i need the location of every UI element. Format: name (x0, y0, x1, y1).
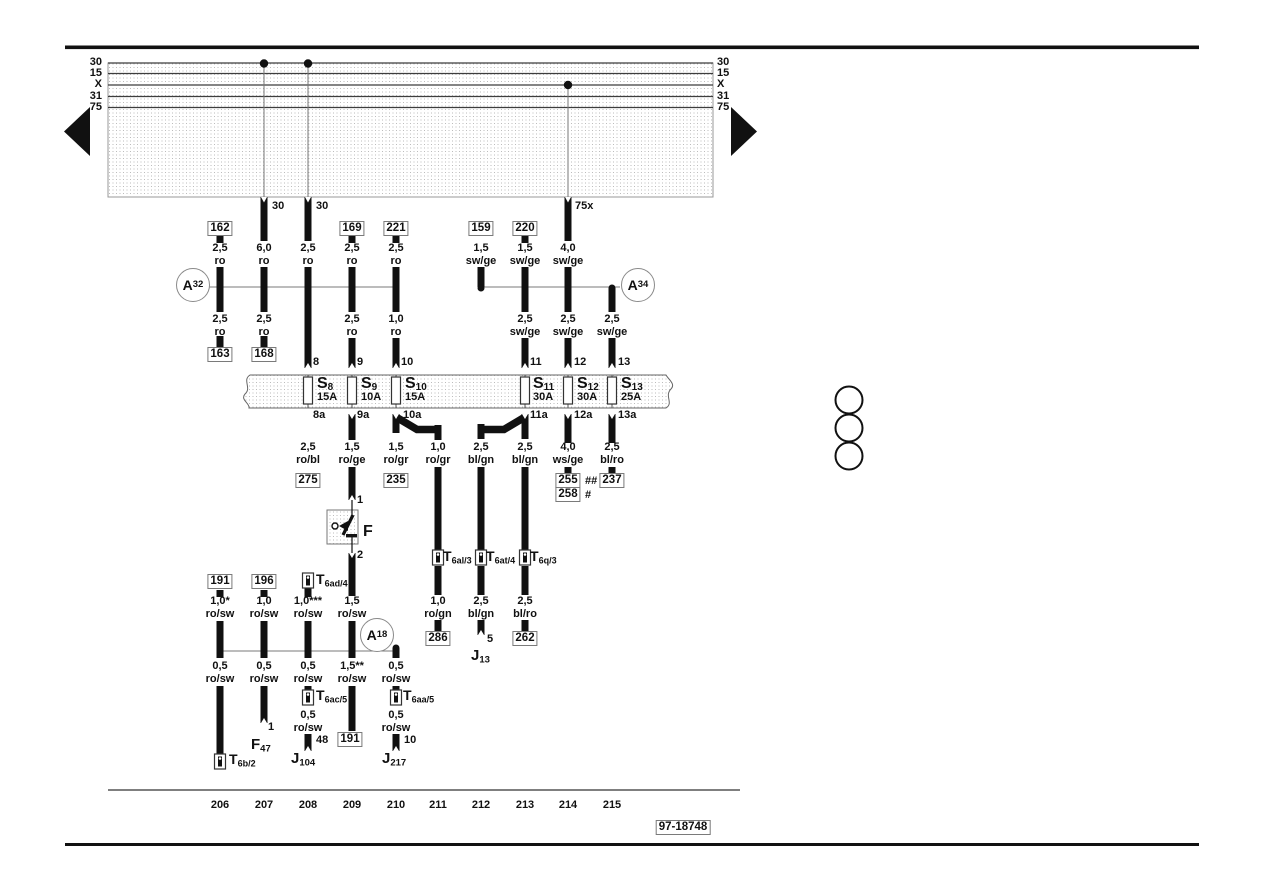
component-f-label: F (363, 524, 373, 539)
ref-box-275: 275 (295, 473, 320, 488)
wire-label: 2,5bl/ro (513, 595, 537, 621)
fuse-s13-label: S1325A (621, 376, 643, 403)
track-number: 212 (472, 799, 490, 811)
wire-label: 1,5sw/ge (510, 242, 541, 268)
rail-label: 75 (717, 102, 747, 113)
terminal-10: 10 (401, 356, 413, 368)
connector-t6ad4-label: T6ad/4 (316, 572, 348, 586)
wire-label: 2,5ro (388, 242, 403, 268)
node-a32: A32 (176, 268, 210, 302)
terminal-9a: 9a (357, 409, 369, 421)
bus-exit-label: 30 (316, 200, 328, 212)
terminal-9: 9 (357, 356, 363, 368)
terminal-j104-48: 48 (316, 734, 328, 746)
wire-label: 0,5ro/sw (250, 660, 279, 686)
rail-label: X (717, 79, 747, 90)
ref-box-235: 235 (383, 473, 408, 488)
rail-label: X (72, 79, 102, 90)
track-number: 207 (255, 799, 273, 811)
bus-rail-labels-left: 30 15 X 31 75 (72, 57, 102, 113)
node-a18: A18 (360, 618, 394, 652)
ref-box-221: 221 (383, 221, 408, 236)
wire-label: 1,0***ro/sw (294, 595, 323, 621)
wire-label: 0,5ro/sw (294, 660, 323, 686)
diagram-number: 97-18748 (656, 820, 711, 835)
wire-label: 0,5ro/sw (294, 709, 323, 735)
ref-box-163: 163 (207, 347, 232, 362)
component-f47-label: F47 (251, 737, 271, 752)
wire-label: 2,5ro (212, 242, 227, 268)
wire-label: 6,0ro (256, 242, 271, 268)
connector-t6at4-label: T6at/4 (486, 549, 515, 563)
ref-box-258: 258 (555, 487, 580, 502)
wire-label: 1,5ro/gr (383, 441, 408, 467)
connector-t6al3-label: T6al/3 (443, 549, 472, 563)
fuse-s8-label: S815A (317, 376, 337, 403)
connector-t6aa5-label: T6aa/5 (403, 688, 434, 702)
fuse-strip (244, 375, 673, 408)
ref-box-191: 191 (207, 574, 232, 589)
fuse-s9-label: S910A (361, 376, 381, 403)
wire-label: 2,5ro/bl (296, 441, 320, 467)
fuse-s12-label: S1230A (577, 376, 599, 403)
connector-t6ad4-icon (303, 573, 314, 588)
wire-label: 2,5ro (344, 242, 359, 268)
terminal-8: 8 (313, 356, 319, 368)
ref-mark-255: ## (585, 475, 597, 487)
terminal-f47-1: 1 (268, 721, 274, 733)
terminal-10a: 10a (403, 409, 421, 421)
wire-label: 2,5sw/ge (597, 313, 628, 339)
ref-box-191-bottom: 191 (337, 732, 362, 747)
wire-label: 2,5sw/ge (553, 313, 584, 339)
binder-holes (836, 387, 863, 470)
wire-label: 4,0sw/ge (553, 242, 584, 268)
rail-label: 75 (72, 102, 102, 113)
wiring-diagram-graphics (0, 0, 1263, 893)
terminal-12a: 12a (574, 409, 592, 421)
connector-t6b2-label: T6b/2 (229, 752, 256, 766)
wire-label: 2,5sw/ge (510, 313, 541, 339)
bus-exit-label: 30 (272, 200, 284, 212)
wire-label: 1,5ro/sw (338, 595, 367, 621)
wire-label: 1,5ro/ge (339, 441, 366, 467)
wire-label: 1,0ro/gn (424, 595, 452, 621)
ref-mark-258: # (585, 489, 591, 501)
wire-label: 2,5bl/gn (468, 441, 494, 467)
wire-label: 1,0ro/sw (250, 595, 279, 621)
terminal-11: 11 (530, 356, 542, 368)
wire-label: 1,0ro (388, 313, 403, 339)
track-number: 210 (387, 799, 405, 811)
connector-t6q3-label: T6q/3 (530, 549, 557, 563)
wire-label: 0,5ro/sw (206, 660, 235, 686)
wire-label: 0,5ro/sw (382, 660, 411, 686)
connector-t6q3-icon (520, 550, 531, 565)
brake-switch-symbol (327, 500, 358, 553)
arrow-right-icon (731, 107, 757, 156)
bus-bar (108, 59, 713, 197)
wire-label: 2,5ro (300, 242, 315, 268)
wire-label: 2,5ro (344, 313, 359, 339)
track-number: 215 (603, 799, 621, 811)
ref-box-286: 286 (425, 631, 450, 646)
wire-label: 0,5ro/sw (382, 709, 411, 735)
terminal-13a: 13a (618, 409, 636, 421)
wire-label: 2,5ro (212, 313, 227, 339)
ref-box-262: 262 (512, 631, 537, 646)
terminal-j13-5: 5 (487, 633, 493, 645)
bus-rail-labels-right: 30 15 X 31 75 (717, 57, 747, 113)
track-number: 209 (343, 799, 361, 811)
ref-box-169: 169 (339, 221, 364, 236)
component-j104-label: J104 (291, 751, 315, 766)
track-number: 206 (211, 799, 229, 811)
wire-label: 2,5bl/gn (468, 595, 494, 621)
connector-t6aa5-icon (391, 690, 402, 705)
ref-box-159: 159 (468, 221, 493, 236)
terminal-f-1: 1 (357, 494, 363, 506)
connector-t6ac5-label: T6ac/5 (316, 688, 347, 702)
component-j13-label: J13 (471, 648, 490, 663)
track-number: 214 (559, 799, 577, 811)
connector-t6at4-icon (476, 550, 487, 565)
wire-label: 4,0ws/ge (553, 441, 584, 467)
fuse-s10-label: S1015A (405, 376, 427, 403)
wire-label: 2,5bl/gn (512, 441, 538, 467)
terminal-j217-10: 10 (404, 734, 416, 746)
component-j217-label: J217 (382, 751, 406, 766)
ref-box-220: 220 (512, 221, 537, 236)
terminal-13: 13 (618, 356, 630, 368)
ref-box-255: 255 (555, 473, 580, 488)
terminal-8a: 8a (313, 409, 325, 421)
track-number: 213 (516, 799, 534, 811)
ref-box-237: 237 (599, 473, 624, 488)
bus-exit-label: 75x (575, 200, 593, 212)
wire-label: 1,5**ro/sw (338, 660, 367, 686)
ref-box-168: 168 (251, 347, 276, 362)
track-number: 208 (299, 799, 317, 811)
ref-box-162: 162 (207, 221, 232, 236)
terminal-f-2: 2 (357, 549, 363, 561)
connector-t6b2-icon (215, 754, 226, 769)
arrow-left-icon (64, 107, 90, 156)
wire-label: 2,5ro (256, 313, 271, 339)
wiring-diagram-page: 30 15 X 31 75 30 15 X 31 75 30 30 75x 16… (0, 0, 1263, 893)
fuse-s11-label: S1130A (533, 376, 554, 403)
connector-t6ac5-icon (303, 690, 314, 705)
terminal-12: 12 (574, 356, 586, 368)
terminal-11a: 11a (530, 409, 548, 421)
wire-label: 1,0*ro/sw (206, 595, 235, 621)
ref-box-196: 196 (251, 574, 276, 589)
connector-t6al3-icon (433, 550, 444, 565)
wire-label: 2,5bl/ro (600, 441, 624, 467)
wire-label: 1,0ro/gr (425, 441, 450, 467)
track-number: 211 (429, 799, 447, 811)
node-a34: A34 (621, 268, 655, 302)
wire-label: 1,5sw/ge (466, 242, 497, 268)
